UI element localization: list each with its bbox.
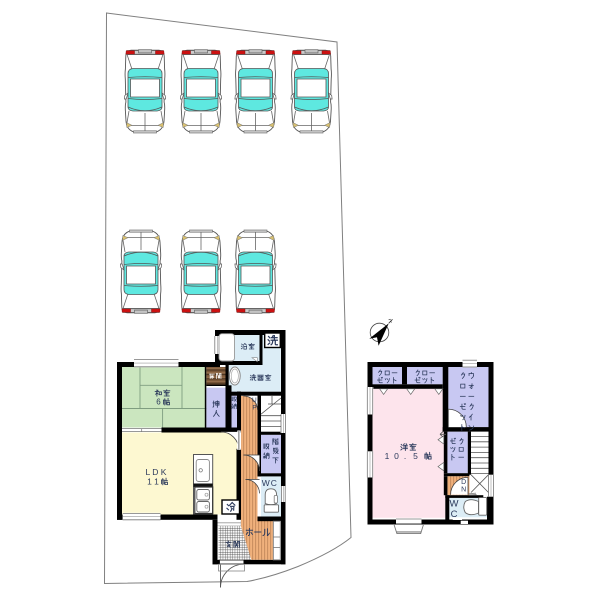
svg-text:P: P: [252, 405, 256, 412]
svg-text:1 1: 1 1: [147, 477, 159, 487]
svg-text:W: W: [262, 478, 270, 488]
svg-text:N: N: [461, 487, 466, 494]
svg-text:W: W: [450, 499, 459, 510]
svg-text:1: 1: [385, 451, 390, 461]
svg-text:.: .: [404, 451, 406, 461]
svg-text:6: 6: [156, 398, 161, 407]
svg-text:C: C: [271, 478, 277, 488]
svg-text:C: C: [451, 509, 458, 520]
svg-text:U: U: [252, 397, 257, 404]
svg-text:L D K: L D K: [146, 467, 167, 477]
svg-text:0: 0: [394, 451, 399, 461]
svg-text:D: D: [461, 479, 466, 486]
svg-text:5: 5: [413, 451, 418, 461]
